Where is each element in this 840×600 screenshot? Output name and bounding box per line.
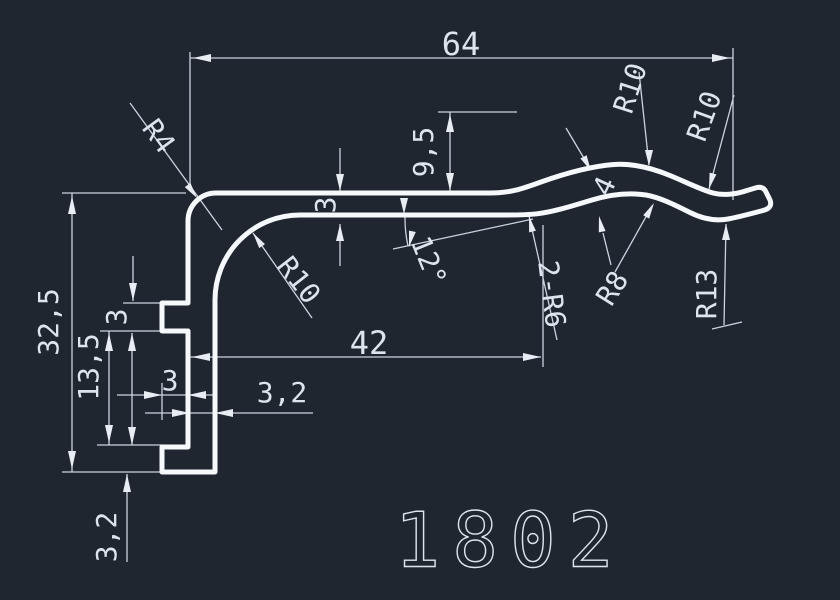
dim-total-width-label: 64 [442,25,481,63]
cad-viewport: 64 42 32,5 13,5 3 3,2 3 3,2 9,5 3 4 12° … [0,0,840,600]
dim-arm-length-label: 42 [350,324,389,362]
dim-crest-offset-label: 9,5 [407,127,440,178]
radius-r13-label: R13 [690,269,723,320]
part-number-title: 1802 [394,496,625,585]
technical-drawing: 64 42 32,5 13,5 3 3,2 3 3,2 9,5 3 4 12° … [0,0,840,600]
dim-total-height-label: 32,5 [32,288,65,355]
dim-arm-thickness-label: 3 [309,197,342,214]
dim-wall-thickness-label: 3,2 [257,376,308,409]
dim-rib-height-label: 3 [100,309,133,326]
dim-mid-height-label: 13,5 [72,333,105,400]
dim-foot-height-label: 3,2 [90,512,123,563]
dim-rib-depth-label: 3 [162,364,179,397]
